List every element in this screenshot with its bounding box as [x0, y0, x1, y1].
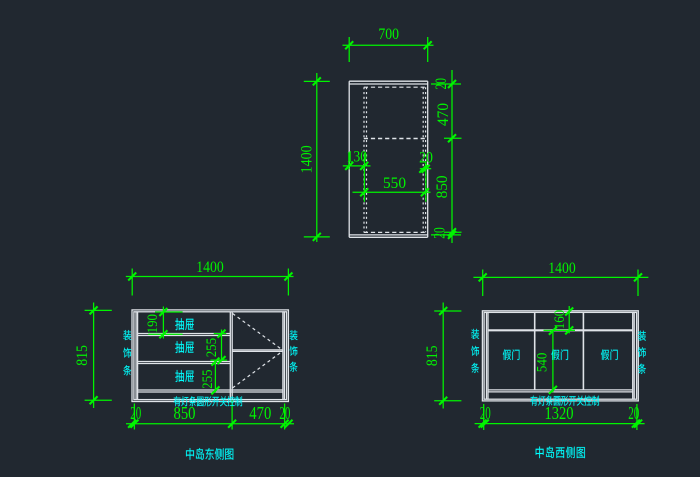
svg-text:20: 20: [628, 403, 639, 423]
svg-text:20: 20: [279, 403, 290, 423]
svg-text:255: 255: [204, 338, 220, 357]
svg-text:1400: 1400: [299, 145, 316, 173]
svg-text:160: 160: [552, 310, 568, 329]
svg-text:550: 550: [383, 175, 406, 192]
svg-text:815: 815: [74, 345, 91, 366]
svg-text:540: 540: [534, 353, 550, 372]
svg-text:20: 20: [432, 227, 449, 239]
svg-text:190: 190: [145, 314, 161, 333]
svg-text:20: 20: [480, 403, 491, 423]
svg-text:255: 255: [200, 370, 216, 389]
svg-text:1320: 1320: [545, 403, 574, 423]
svg-text:470: 470: [249, 403, 271, 423]
svg-text:700: 700: [378, 26, 399, 43]
svg-text:815: 815: [424, 346, 441, 367]
svg-text:20: 20: [130, 403, 141, 423]
svg-text:470: 470: [435, 103, 452, 126]
svg-text:20: 20: [433, 78, 450, 90]
svg-text:1400: 1400: [548, 260, 576, 277]
svg-text:1400: 1400: [196, 259, 224, 276]
svg-text:850: 850: [434, 175, 451, 198]
